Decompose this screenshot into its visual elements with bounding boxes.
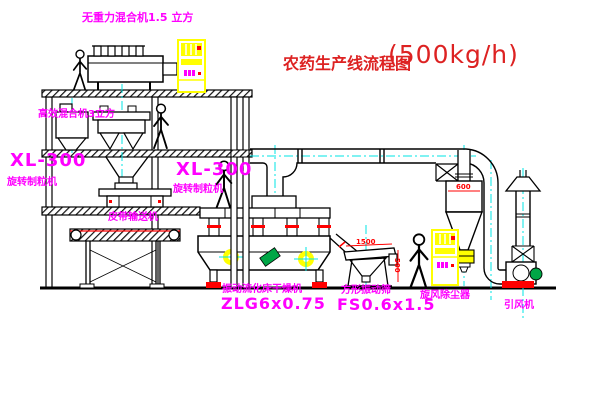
label-dryer-model: ZLG6x0.75 xyxy=(221,296,326,312)
label-granulator-model: XL-300 xyxy=(176,161,252,179)
label-cyclone: 旋风除尘器 xyxy=(420,291,470,301)
label-granulator-name: 旋转制粒机 xyxy=(173,185,223,195)
flex-joint-cyclone xyxy=(436,164,458,181)
dim-sieve-length: 1500 xyxy=(356,238,375,246)
diagram-title-capacity: (500kg/h) xyxy=(388,40,519,69)
label-belt-conveyor: 皮带输送机 xyxy=(108,213,158,223)
person-figure xyxy=(74,50,87,90)
label-mill-left-name: 旋转制粒机 xyxy=(7,178,57,188)
control-cabinet-ground xyxy=(432,230,458,285)
belt-conveyor xyxy=(70,229,180,288)
person-figure xyxy=(411,234,428,287)
label-floor2-mixer: 高效混合机3立方 xyxy=(38,110,115,120)
dim-cyclone-diameter: 600 xyxy=(456,183,471,191)
flow-diagram-canvas: 农药生产线流程图 (500kg/h) 无重力混合机1.5 立方 高效混合机3立方… xyxy=(0,0,600,403)
fluid-bed-dryer xyxy=(198,196,358,288)
label-mill-left-model: XL-300 xyxy=(10,152,86,170)
square-vibrating-sieve xyxy=(344,244,398,286)
feed-hopper xyxy=(106,157,148,183)
dim-sieve-height: 500 xyxy=(393,258,401,273)
gravity-free-mixer xyxy=(88,46,179,90)
rotary-granulator xyxy=(99,183,171,207)
control-cabinet-top xyxy=(178,40,205,92)
label-top-mixer: 无重力混合机1.5 立方 xyxy=(82,12,193,23)
label-fan: 引风机 xyxy=(504,301,534,311)
induced-draft-fan-stack xyxy=(484,170,542,288)
